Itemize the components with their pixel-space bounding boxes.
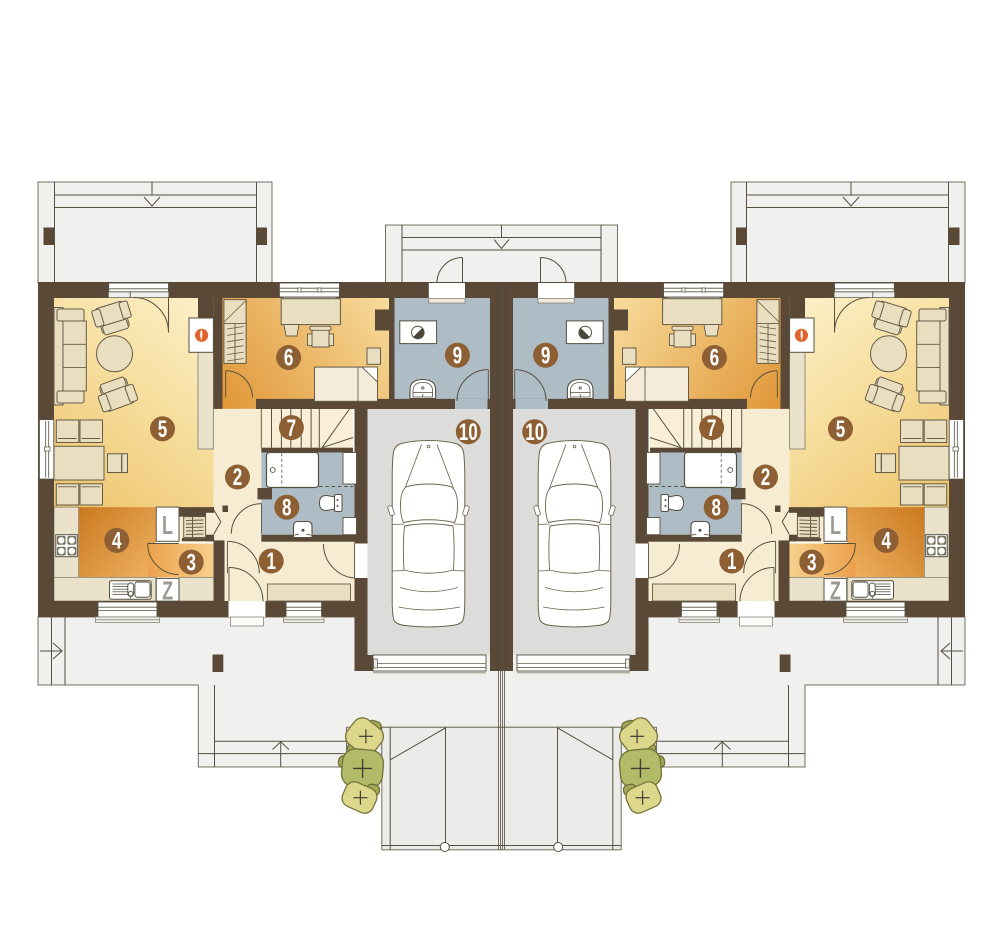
svg-text:10: 10 [459, 419, 478, 446]
svg-text:L: L [830, 510, 841, 540]
svg-text:L: L [162, 510, 173, 540]
svg-text:4: 4 [881, 528, 891, 555]
svg-text:5: 5 [158, 416, 168, 443]
svg-text:3: 3 [186, 549, 196, 576]
svg-text:Z: Z [162, 576, 173, 606]
svg-text:3: 3 [807, 549, 817, 576]
svg-text:6: 6 [284, 345, 294, 372]
svg-text:7: 7 [287, 415, 297, 442]
svg-text:8: 8 [282, 494, 292, 521]
svg-text:8: 8 [711, 494, 721, 521]
svg-text:9: 9 [541, 342, 551, 369]
svg-text:6: 6 [710, 345, 720, 372]
svg-text:7: 7 [707, 415, 717, 442]
svg-text:9: 9 [453, 342, 463, 369]
svg-text:10: 10 [525, 419, 544, 446]
svg-text:5: 5 [836, 416, 846, 443]
svg-text:2: 2 [761, 464, 771, 491]
svg-text:4: 4 [112, 528, 122, 555]
svg-text:1: 1 [727, 548, 737, 575]
svg-text:2: 2 [233, 464, 243, 491]
svg-text:Z: Z [830, 576, 841, 606]
svg-text:1: 1 [266, 548, 276, 575]
